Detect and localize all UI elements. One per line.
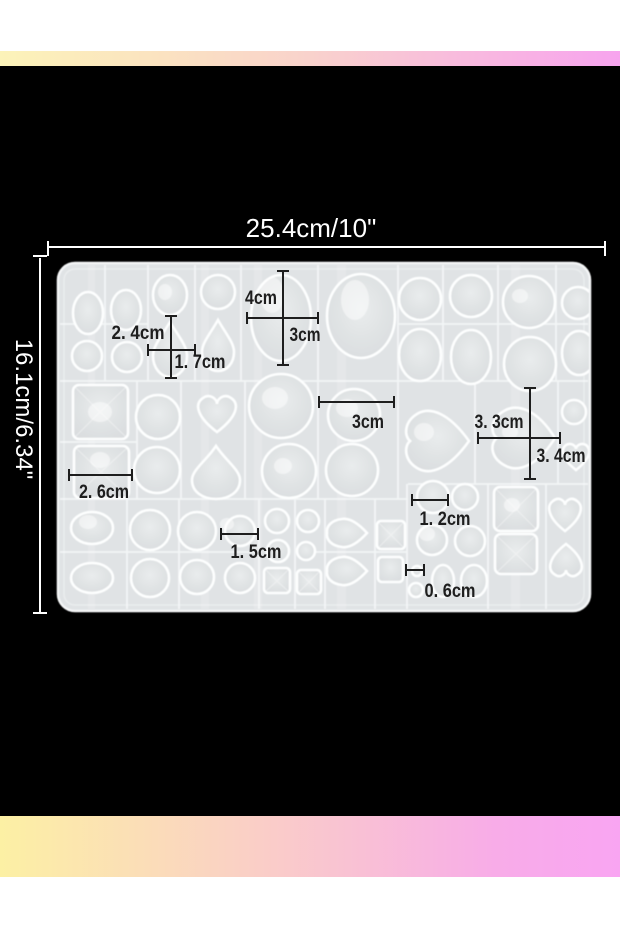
svg-text:2. 4cm: 2. 4cm [112,323,165,344]
svg-text:1. 2cm: 1. 2cm [420,509,471,530]
svg-text:2. 6cm: 2. 6cm [79,482,129,503]
svg-text:3cm: 3cm [352,412,384,433]
svg-text:3cm: 3cm [290,325,321,346]
svg-text:16.1cm/6.34": 16.1cm/6.34" [10,339,37,480]
svg-text:1. 7cm: 1. 7cm [175,352,226,373]
svg-text:3. 3cm: 3. 3cm [475,412,524,433]
svg-text:4cm: 4cm [245,288,277,309]
svg-text:25.4cm/10": 25.4cm/10" [246,213,377,243]
svg-text:1. 5cm: 1. 5cm [231,542,282,563]
svg-text:0. 6cm: 0. 6cm [425,581,476,602]
svg-text:3. 4cm: 3. 4cm [537,446,586,467]
